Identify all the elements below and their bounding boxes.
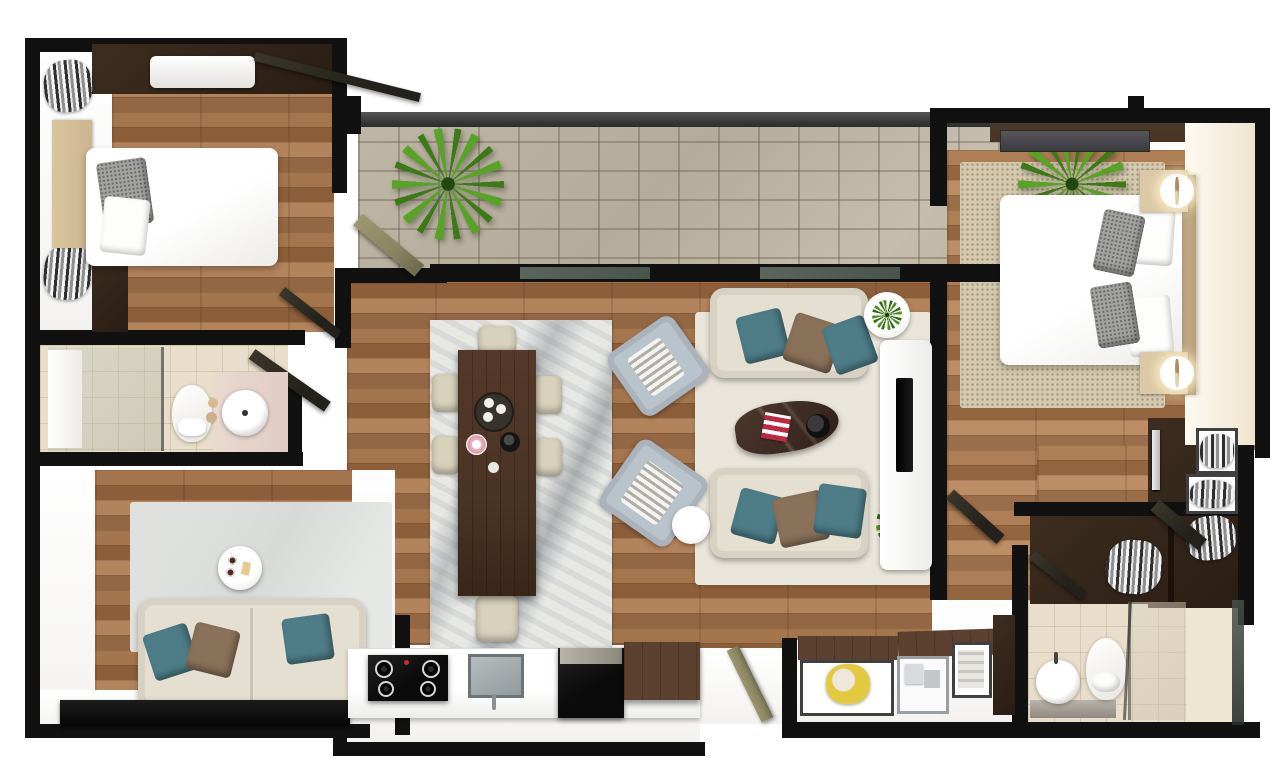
wall-bathroom1-right	[288, 385, 302, 466]
coffee-table-bowl	[806, 414, 830, 438]
dining-chair-bottom	[476, 596, 518, 642]
kitchen-wood-counter	[624, 642, 700, 700]
dining-chair-right-2	[534, 438, 562, 476]
appliance-top-sheen	[560, 648, 622, 664]
den-table-cup-2	[226, 568, 235, 577]
tray-plate-3	[483, 412, 493, 422]
den-media-console	[60, 700, 350, 726]
master-sliding-wardrobe	[1000, 130, 1150, 152]
side-table-plant	[872, 300, 902, 330]
sliding-glass-pane-left	[520, 267, 650, 279]
bathroom2-glass-right	[1232, 600, 1244, 725]
wall-left-outer	[25, 38, 40, 738]
coffee-table-magazine	[761, 412, 791, 442]
wardrobe-clothes-2	[1189, 479, 1234, 509]
closet-front-floor	[1037, 445, 1148, 507]
laundry-towel-yellow	[826, 664, 870, 704]
dining-chair-left-1	[432, 374, 460, 412]
kitchen-faucet	[492, 694, 496, 710]
dining-vase	[500, 432, 520, 452]
bathroom2-shower-glass	[1128, 602, 1186, 720]
dining-chair-right-1	[534, 376, 562, 414]
bathroom1-toilet-lid	[178, 418, 206, 436]
palm-plant-left	[392, 128, 504, 240]
bathroom2-toilet-lid	[1092, 672, 1120, 692]
kitchen-sink	[468, 654, 524, 698]
master-lamp-bottom	[1160, 356, 1194, 390]
den-pillow-teal-2	[281, 613, 335, 665]
washer-item-1	[905, 664, 923, 684]
sliding-glass-pane-right	[760, 267, 900, 279]
bedroom1-wardrobe-bedding	[150, 56, 255, 88]
wall-right-outer	[1255, 108, 1270, 458]
den-loveseat-split	[250, 608, 253, 700]
wall-laundry-left	[782, 638, 797, 728]
cooktop-knob-red	[404, 660, 409, 665]
laundry-counter-left	[798, 636, 898, 660]
bathroom2-wall-band	[1186, 600, 1232, 722]
living-pillow-teal-4	[813, 483, 867, 539]
tray-plate-1	[484, 398, 494, 408]
wall-tv-spine	[930, 268, 947, 600]
bathroom1-jar-1	[208, 398, 218, 408]
floor-plan	[0, 0, 1280, 773]
wall-master-top	[930, 108, 1270, 123]
bathroom1-basin-drain	[242, 410, 248, 416]
living-small-table	[672, 506, 710, 544]
den-table-cup-1	[228, 556, 237, 565]
hall-storage-towels	[958, 650, 984, 688]
bathroom1-shower-tray	[48, 350, 82, 448]
dining-small-plate	[488, 462, 499, 473]
wall-kitchen-bottom	[333, 742, 705, 756]
wall-right-lower	[1238, 415, 1254, 625]
dining-serving-tray	[474, 392, 514, 432]
bathroom2-basin-faucet	[1054, 652, 1058, 664]
cooktop-burner-3	[378, 681, 394, 697]
wall-balcony-left-stub	[345, 96, 361, 134]
cooktop-burner-2	[422, 660, 440, 678]
master-lamp-top	[1160, 174, 1194, 208]
cooktop-burner-4	[420, 681, 436, 697]
wardrobe-hanger-rail	[1152, 430, 1160, 490]
dining-chair-left-2	[432, 436, 460, 474]
bathroom2-basin	[1036, 660, 1080, 704]
hall-cabinet-dark	[993, 615, 1015, 715]
tray-plate-2	[496, 404, 506, 414]
cooktop-burner-1	[375, 660, 393, 678]
bathroom2-counter	[1030, 700, 1116, 718]
dining-table	[458, 350, 536, 596]
dining-pink-plate	[466, 434, 487, 455]
tv-panel	[896, 378, 913, 472]
washer-item-2	[924, 670, 940, 688]
bedroom1-pillow-white	[99, 196, 151, 257]
wall-bedroom1-bathroom1	[25, 330, 305, 345]
wall-bathroom1-bottom	[25, 452, 303, 466]
bathroom1-jar-2	[206, 412, 217, 423]
den-side-table	[218, 546, 262, 590]
wardrobe-clothes-1	[1200, 434, 1234, 468]
wall-den-bottom	[25, 724, 370, 738]
